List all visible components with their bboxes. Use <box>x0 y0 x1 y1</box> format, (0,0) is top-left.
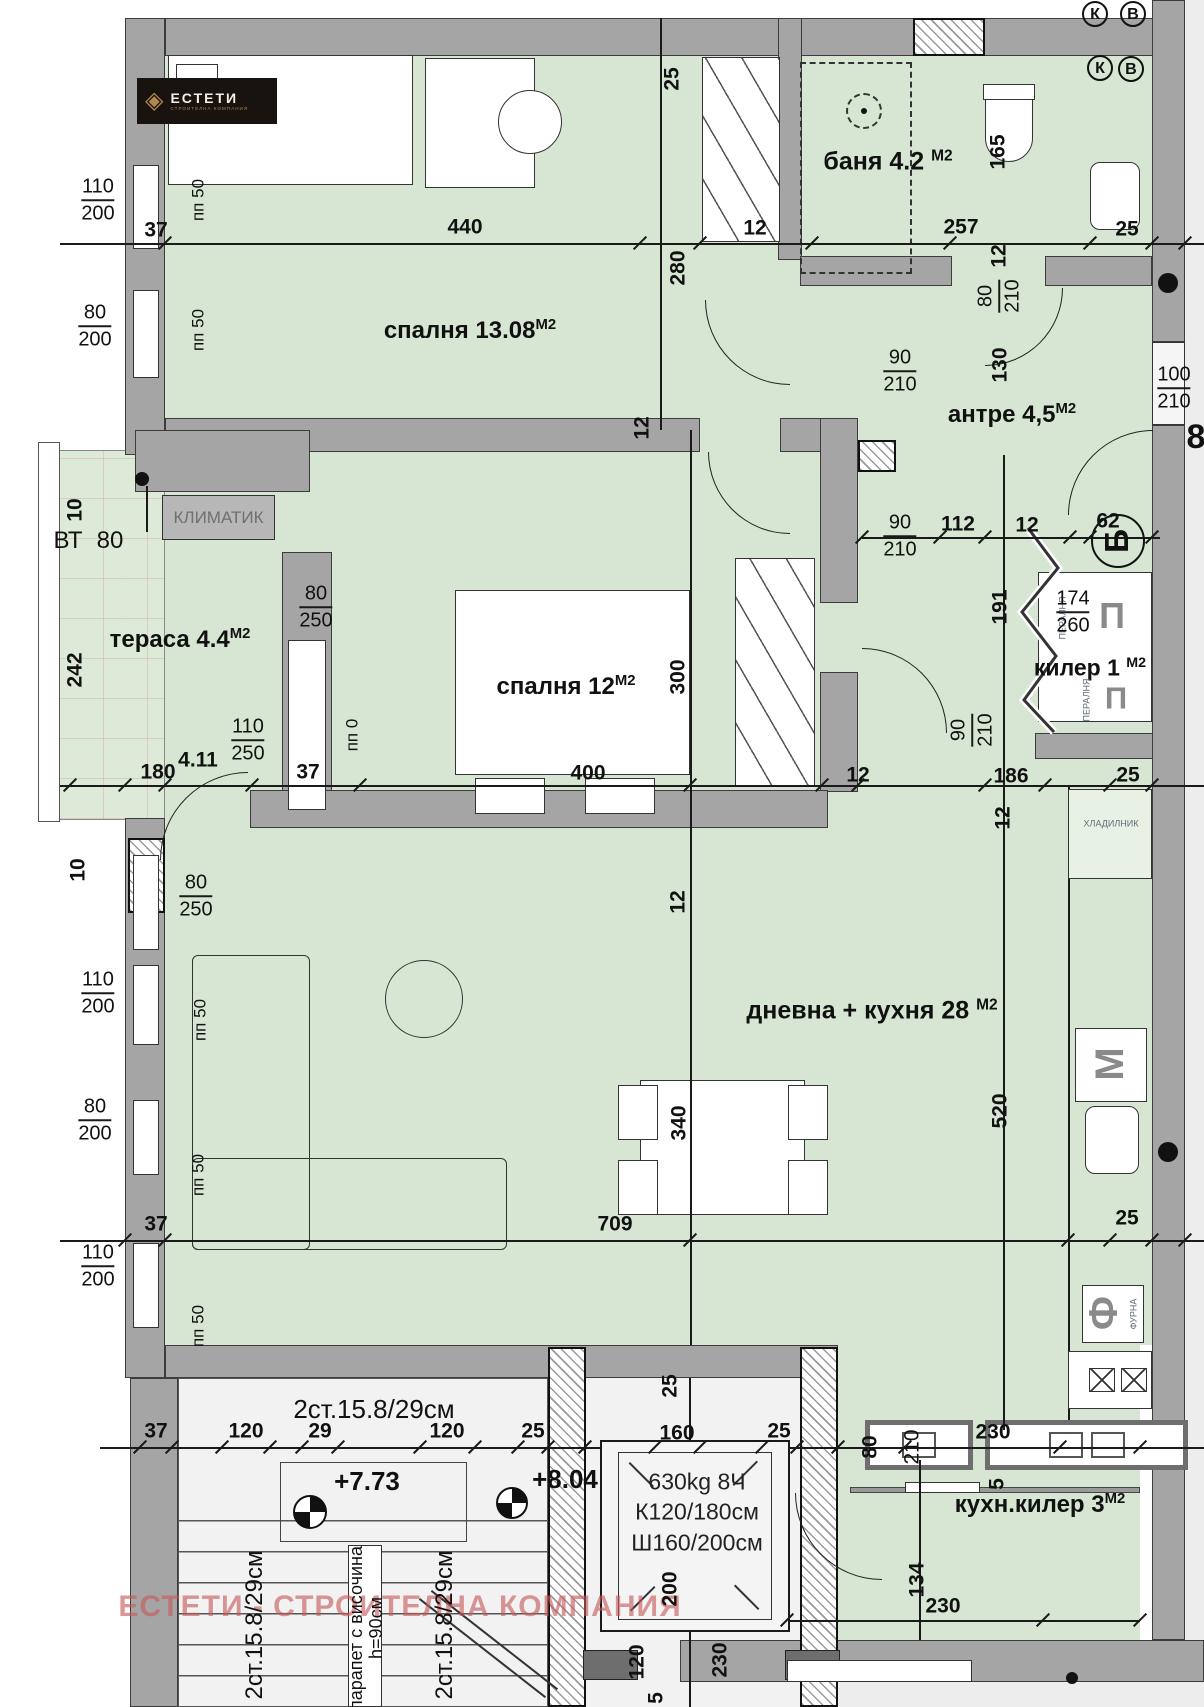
column-dot <box>1066 1672 1078 1684</box>
shaft-column <box>913 18 985 56</box>
stair-label: 2ст.15.8/29см <box>433 1551 457 1700</box>
wall <box>780 418 822 452</box>
dimension-line <box>690 430 692 1345</box>
dimension-fraction: 110200 <box>81 176 114 224</box>
dishwasher-icon: М <box>1090 1047 1130 1080</box>
dimension-label: 257 <box>943 217 978 238</box>
dimension-label: 25 <box>660 1374 681 1397</box>
oven-label: ФУРНА <box>1130 1299 1139 1330</box>
entrance-number: 8 <box>1187 420 1204 454</box>
fridge-label: ХЛАДИЛНИК <box>1084 820 1139 829</box>
level-marker-icon <box>293 1495 327 1529</box>
air-conditioner-box: КЛИМАТИК <box>162 495 275 540</box>
dimension-label: 80 <box>97 529 124 553</box>
chair-icon <box>788 1085 828 1140</box>
dimension-label: 37 <box>144 220 167 241</box>
dimension-label: 10 <box>65 498 86 521</box>
dimension-label: 130 <box>990 347 1011 382</box>
dimension-label: пп 50 <box>190 309 207 351</box>
dimension-label: 37 <box>296 762 319 783</box>
dimension-fraction: 174260 <box>1056 588 1089 636</box>
washer-icon: П <box>1105 683 1127 714</box>
sofa-icon <box>192 1158 507 1250</box>
dimension-label: 200 <box>660 1571 681 1606</box>
chair-icon <box>618 1085 658 1140</box>
window <box>133 965 159 1045</box>
dimension-label: 5 <box>646 1692 667 1704</box>
dimension-label: 520 <box>990 1093 1011 1128</box>
shaft-column <box>858 440 896 472</box>
room-label-terrace: тераса 4.4М2 <box>110 626 251 654</box>
stove-icon <box>1068 1351 1152 1409</box>
section-marker: В <box>1118 56 1144 82</box>
dimension-label: 12 <box>993 806 1014 829</box>
dimension-fraction: 80200 <box>78 302 111 350</box>
room-label-bath: баня 4.2 М2 <box>823 147 952 176</box>
dimension-label: пп 50 <box>190 1305 207 1347</box>
dining-table-icon <box>640 1080 805 1215</box>
logo-subtitle: СТРОИТЕЛНА КОМПАНИЯ <box>170 106 248 111</box>
dimension-fraction: 100210 <box>1157 364 1190 412</box>
dimension-line <box>919 1460 921 1640</box>
dimension-label: 25 <box>521 1421 544 1442</box>
dimension-label: 134 <box>907 1562 928 1597</box>
wall <box>820 418 858 603</box>
room-label-living: дневна + кухня 28 М2 <box>746 996 997 1025</box>
terrace-railing <box>38 442 60 822</box>
window <box>133 290 159 378</box>
terrace-door <box>133 855 159 950</box>
dimension-label: 440 <box>447 217 482 238</box>
dimension-label: 12 <box>743 218 766 239</box>
washer-icon: П <box>1099 598 1125 634</box>
dimension-label: пп 0 <box>344 719 361 752</box>
dimension-fraction: 110200 <box>81 1242 114 1290</box>
dimension-label: 10 <box>68 858 89 881</box>
dimension-fraction: 110250 <box>231 716 264 764</box>
leader-line <box>146 486 148 532</box>
level-mark: +8.04 <box>532 1466 598 1492</box>
wall <box>1045 256 1152 286</box>
dimension-fraction: 80200 <box>78 1096 111 1144</box>
wall <box>165 1345 838 1378</box>
room-label-kitchen-kiler: кухн.килер 3М2 <box>955 1491 1126 1519</box>
dimension-label: 25 <box>662 67 683 90</box>
dimension-label: 242 <box>65 652 86 687</box>
elevator-wall <box>548 1347 586 1707</box>
bench-icon <box>475 778 545 814</box>
dimension-label: 230 <box>975 1422 1010 1443</box>
dimension-label: 12 <box>632 416 653 439</box>
company-logo: ◈ ЕСТЕТИ СТРОИТЕЛНА КОМПАНИЯ <box>137 78 277 124</box>
dimension-label: 300 <box>668 659 689 694</box>
dimension-label: пп 50 <box>192 999 209 1041</box>
dimension-label: пп 50 <box>190 179 207 221</box>
room-label-kiler: килер 1 М2 <box>1034 655 1146 682</box>
wall <box>135 430 310 492</box>
stair-label: 2ст.15.8/29см <box>243 1551 267 1700</box>
watermark: ЕСТЕТИ - СТРОИТЕЛНА КОМПАНИЯ <box>118 1590 681 1624</box>
dimension-label: 120 <box>627 1644 648 1679</box>
air-conditioner-label: КЛИМАТИК <box>174 508 264 528</box>
dimension-label: 709 <box>597 1214 632 1235</box>
dimension-label: 120 <box>228 1421 263 1442</box>
rug-icon <box>385 960 463 1038</box>
dimension-fraction: 90210 <box>948 713 996 746</box>
chair-icon <box>618 1160 658 1215</box>
dimension-label: 4.11 <box>178 750 218 771</box>
vt-label: ВТ <box>53 529 82 553</box>
dimension-label: 37 <box>144 1421 167 1442</box>
elevator-capacity: 630kg 8Ч <box>631 1466 763 1496</box>
oven-icon: Ф <box>1084 1296 1124 1330</box>
dimension-label: 25 <box>767 1421 790 1442</box>
column-dot <box>1158 273 1178 293</box>
dimension-fraction: 80210 <box>975 279 1023 312</box>
window <box>133 1100 159 1175</box>
dimension-label: 186 <box>993 766 1028 787</box>
section-marker: Б <box>1091 514 1145 568</box>
window <box>133 1243 159 1328</box>
dimension-label: 80 <box>860 1435 881 1458</box>
dimension-line <box>60 243 1204 245</box>
washer-label: ПЕРАЛНЯ <box>1083 679 1092 722</box>
dimension-label: 5 <box>987 1478 1008 1490</box>
burner-icon <box>1089 1368 1115 1392</box>
dimension-label: 12 <box>1015 515 1038 536</box>
chair-icon <box>498 90 562 154</box>
dimension-label: пп 50 <box>190 1154 207 1196</box>
wardrobe-icon <box>702 57 780 242</box>
dimension-label: 340 <box>669 1105 690 1140</box>
dimension-fraction: 110200 <box>81 969 114 1017</box>
dimension-fraction: 90210 <box>883 512 916 560</box>
level-mark: +7.73 <box>334 1468 400 1494</box>
dimension-label: 12 <box>989 244 1010 267</box>
level-marker-icon <box>496 1487 528 1519</box>
dimension-label: 25 <box>1116 765 1139 786</box>
dimension-label: 25 <box>1115 219 1138 240</box>
dimension-label: 191 <box>990 589 1011 624</box>
elevator-cabin-size: К120/180см <box>631 1497 763 1527</box>
dimension-fraction: 90210 <box>883 347 916 395</box>
dimension-label: 230 <box>710 1642 731 1677</box>
kitchen-cabinet <box>985 1420 1188 1470</box>
stair-label: 2ст.15.8/29см <box>293 1396 454 1422</box>
railing-note: h=90см <box>367 1597 385 1659</box>
room-label-antre: антре 4,5М2 <box>948 401 1076 429</box>
dimension-line <box>60 1240 1204 1242</box>
wardrobe-icon <box>735 558 815 786</box>
dimension-label: 12 <box>668 890 689 913</box>
toilet-tank <box>983 84 1035 100</box>
section-marker: К <box>1087 55 1113 81</box>
dimension-label: 160 <box>659 1423 694 1444</box>
counter-line <box>1068 787 1070 1430</box>
burner-icon <box>1121 1368 1147 1392</box>
dimension-label: 280 <box>668 250 689 285</box>
logo-title: ЕСТЕТИ <box>170 91 248 106</box>
dimension-line <box>787 1620 1140 1622</box>
dimension-label: 120 <box>429 1421 464 1442</box>
floor-plan: КЛИМАТИК 630kg 8Ч К120/180см Ш160/200см … <box>0 0 1204 1707</box>
dimension-label: 165 <box>988 134 1009 169</box>
logo-icon: ◈ <box>145 89 163 113</box>
chair-icon <box>788 1160 828 1215</box>
elevator-spec: 630kg 8Ч К120/180см Ш160/200см <box>631 1466 763 1557</box>
dimension-label: 230 <box>925 1596 960 1617</box>
dimension-line <box>60 785 1204 787</box>
dimension-label: 25 <box>1115 1208 1138 1229</box>
section-marker: В <box>1120 1 1146 27</box>
wall <box>165 18 1185 56</box>
room-label-bedroom2: спалня 12М2 <box>497 673 636 701</box>
kitchen-sink-icon <box>1085 1106 1139 1174</box>
dimension-fraction: 80250 <box>299 583 332 631</box>
niche <box>787 1660 972 1682</box>
wall <box>778 18 802 260</box>
section-marker: К <box>1082 1 1108 27</box>
shower-drain-dot <box>861 108 867 114</box>
elevator-shaft-size: Ш160/200см <box>631 1527 763 1557</box>
column-dot <box>1158 1142 1178 1162</box>
fridge-icon <box>1068 789 1152 879</box>
room-label-bedroom1: спалня 13.08М2 <box>384 317 556 345</box>
railing-note: парапет с височина <box>347 1546 365 1707</box>
dimension-fraction: 80250 <box>179 872 212 920</box>
dimension-label: 37 <box>144 1214 167 1235</box>
dimension-label: 29 <box>308 1421 331 1442</box>
column-dot <box>135 472 149 486</box>
dimension-label: 400 <box>570 763 605 784</box>
